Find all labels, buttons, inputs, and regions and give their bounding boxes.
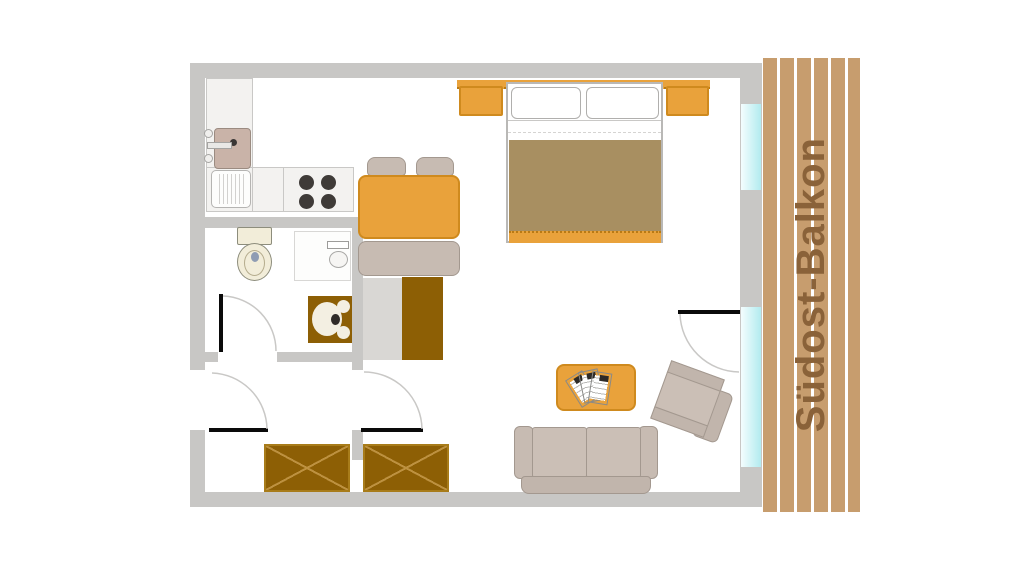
wall-bath-hall-left <box>190 352 218 362</box>
window-icon-lower <box>741 307 761 467</box>
sofa-cushion <box>532 427 587 478</box>
sofa-icon <box>514 426 658 494</box>
wall-bath-living <box>352 217 363 370</box>
wall-top <box>190 63 762 78</box>
floor-plan: Südost-Balkon <box>0 0 1024 566</box>
shower-jet <box>337 326 350 339</box>
bed-blanket <box>509 140 661 232</box>
shower-drain <box>331 314 340 325</box>
chair-icon <box>367 157 406 176</box>
cabinet-icon <box>402 277 443 360</box>
bench-icon <box>358 241 460 276</box>
wardrobe-icon <box>264 444 350 492</box>
living-room-door-arc <box>364 372 422 429</box>
balcony-deck: Südost-Balkon <box>763 58 860 512</box>
basin-faucet <box>327 241 349 249</box>
sofa-backrest <box>521 476 651 494</box>
nightstand-icon <box>459 86 503 116</box>
entrance-door-arc <box>212 373 267 429</box>
balcony-door-icon <box>678 310 740 314</box>
wall-kitchen-bath <box>190 217 363 228</box>
chair-icon <box>416 157 454 176</box>
toilet-flush <box>251 252 259 262</box>
burner <box>321 175 336 190</box>
drainboard-icon <box>211 170 251 208</box>
balcony-label: Südost-Balkon <box>789 137 834 432</box>
sheet-stitch-line <box>508 132 661 133</box>
counter-seam <box>252 168 253 211</box>
pillow <box>511 87 581 119</box>
drainboard-ribs <box>216 174 247 204</box>
wall-bath-hall-right <box>277 352 352 362</box>
counter-seam <box>283 168 284 211</box>
wall-living-door-stub <box>352 430 363 460</box>
sheet-fold-line <box>508 120 661 121</box>
stove-icon <box>291 170 345 211</box>
faucet-icon <box>207 142 232 149</box>
sofa-armrest <box>514 426 534 479</box>
nightstand-icon <box>666 86 709 116</box>
bathroom-door-arc <box>223 296 276 351</box>
wall-bottom <box>190 492 740 507</box>
wardrobe-icon <box>363 444 449 492</box>
washbasin-icon <box>294 231 351 281</box>
burner <box>299 175 314 190</box>
newspaper-masthead <box>599 375 609 382</box>
wall-shaft <box>363 278 402 360</box>
entrance-door-icon <box>209 428 268 432</box>
burner <box>299 194 314 209</box>
window-icon-upper <box>741 104 761 190</box>
sofa-armrest <box>638 426 658 479</box>
basin-bowl <box>329 251 348 268</box>
bathroom-door-icon <box>219 294 223 352</box>
balcony-door-arc <box>680 314 739 372</box>
shower-icon <box>308 296 352 343</box>
newspaper-stack <box>566 366 618 410</box>
faucet-knob <box>204 129 213 138</box>
pillow <box>586 87 659 119</box>
shower-jet <box>337 300 350 313</box>
burner <box>321 194 336 209</box>
bed-footboard <box>509 231 661 243</box>
living-room-door-icon <box>361 428 423 432</box>
dining-table-icon <box>358 175 460 239</box>
sofa-cushion <box>586 427 641 478</box>
faucet-knob <box>204 154 213 163</box>
newspaper-icon <box>588 371 613 406</box>
